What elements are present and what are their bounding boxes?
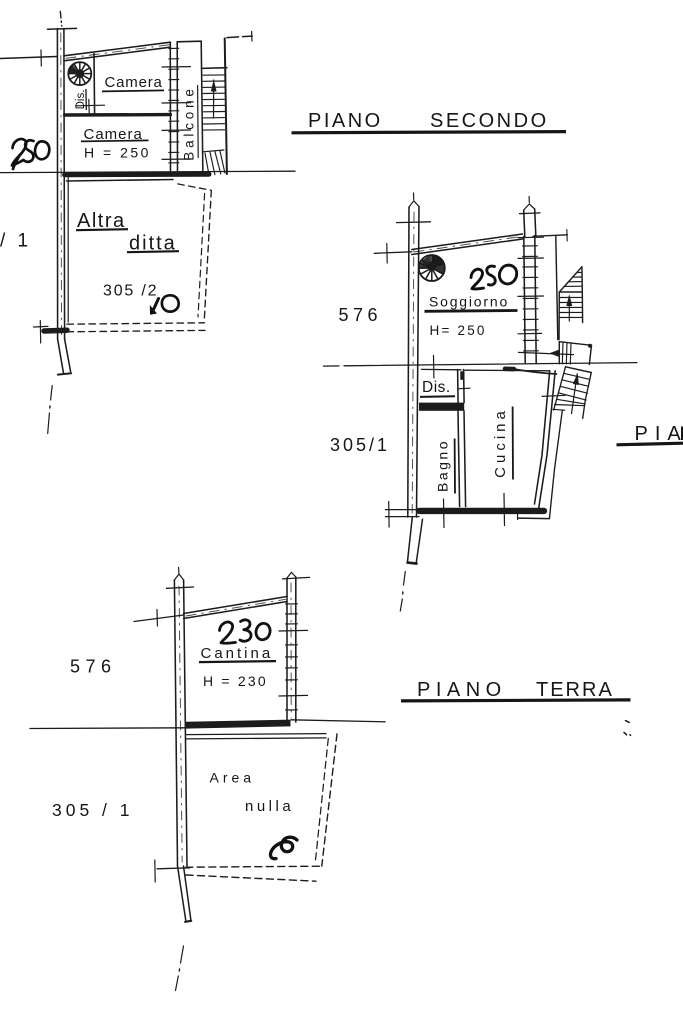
svg-text:PIANO: PIANO (417, 679, 507, 701)
svg-text:Soggiorno: Soggiorno (429, 294, 509, 310)
svg-text:305/1: 305/1 (330, 435, 390, 455)
svg-text:Dis.: Dis. (422, 379, 451, 396)
svg-text:H= 250: H= 250 (430, 323, 487, 338)
svg-text:nulla: nulla (245, 798, 294, 815)
svg-text:SECONDO: SECONDO (430, 110, 549, 132)
svg-text:/ 1: / 1 (0, 231, 32, 252)
svg-text:305 / 1: 305 / 1 (52, 800, 134, 820)
svg-text:PIANO: PIANO (308, 110, 383, 132)
svg-text:H = 250: H = 250 (84, 145, 151, 161)
svg-text:PIA: PIA (635, 423, 683, 445)
svg-text:305 /2: 305 /2 (103, 282, 158, 299)
svg-text:Bagno: Bagno (434, 439, 450, 492)
svg-text:Balcone: Balcone (182, 85, 197, 160)
svg-text:Cucina: Cucina (492, 407, 509, 478)
svg-text:576: 576 (339, 305, 383, 325)
svg-text:Cantina: Cantina (201, 645, 274, 662)
svg-text:H = 230: H = 230 (203, 673, 268, 689)
svg-text:TERRA: TERRA (536, 679, 614, 701)
svg-text:Camera: Camera (105, 74, 163, 91)
svg-text:Area: Area (210, 769, 256, 785)
svg-text:Dis.: Dis. (75, 90, 87, 110)
svg-text:576: 576 (70, 657, 117, 677)
